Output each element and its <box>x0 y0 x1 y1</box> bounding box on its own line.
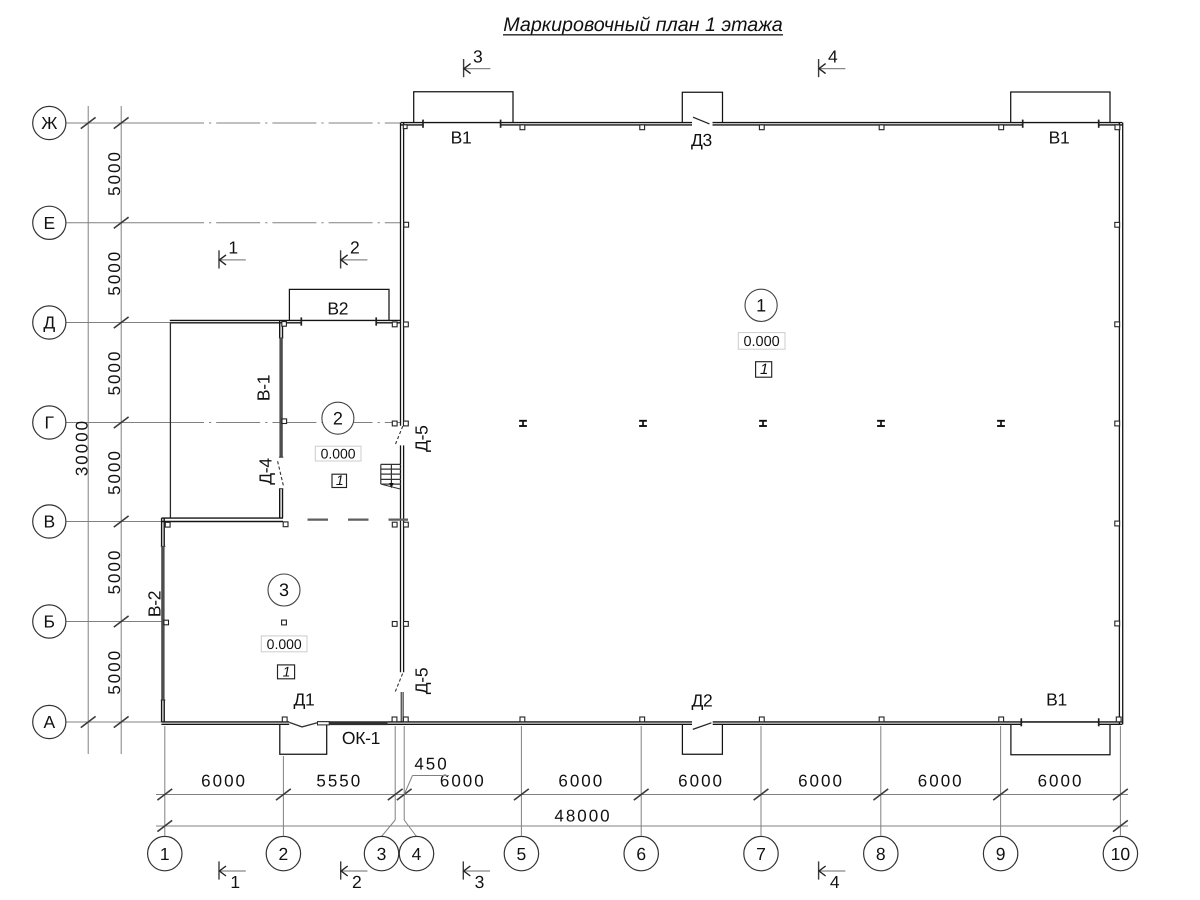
svg-text:Д: Д <box>43 313 55 333</box>
svg-text:1: 1 <box>336 472 344 488</box>
svg-text:2: 2 <box>333 408 343 428</box>
svg-text:0.000: 0.000 <box>321 446 356 462</box>
svg-text:6000: 6000 <box>201 772 247 791</box>
svg-text:3: 3 <box>473 46 483 66</box>
svg-text:5: 5 <box>517 844 527 864</box>
svg-text:6000: 6000 <box>558 772 604 791</box>
svg-text:Ж: Ж <box>41 113 57 133</box>
svg-text:Д2: Д2 <box>692 691 713 711</box>
svg-text:А: А <box>43 712 55 732</box>
svg-text:В1: В1 <box>1049 128 1070 148</box>
svg-text:5000: 5000 <box>105 649 124 695</box>
svg-text:Д-5: Д-5 <box>412 668 432 695</box>
svg-text:6: 6 <box>636 844 646 864</box>
svg-text:0.000: 0.000 <box>267 636 302 652</box>
svg-text:В1: В1 <box>451 128 472 148</box>
svg-text:450: 450 <box>414 755 448 774</box>
svg-text:Д1: Д1 <box>294 690 315 710</box>
svg-text:Д3: Д3 <box>691 130 712 150</box>
svg-text:Д-4: Д-4 <box>256 458 276 485</box>
svg-text:В1: В1 <box>1046 690 1067 710</box>
svg-text:В: В <box>43 512 55 532</box>
svg-text:Маркировочный план 1 этажа: Маркировочный план 1 этажа <box>503 14 782 36</box>
svg-text:5000: 5000 <box>105 150 124 196</box>
svg-text:1: 1 <box>230 872 240 892</box>
svg-text:2: 2 <box>279 844 289 864</box>
svg-text:1: 1 <box>228 238 238 258</box>
svg-text:48000: 48000 <box>554 807 611 826</box>
svg-text:ОК-1: ОК-1 <box>342 728 380 748</box>
svg-text:6000: 6000 <box>1038 772 1084 791</box>
svg-text:1: 1 <box>160 844 170 864</box>
svg-text:1: 1 <box>756 295 766 315</box>
svg-text:6000: 6000 <box>918 772 964 791</box>
svg-text:3: 3 <box>279 580 289 600</box>
svg-text:Е: Е <box>43 213 55 233</box>
svg-text:6000: 6000 <box>440 772 486 791</box>
svg-text:В2: В2 <box>327 299 348 319</box>
svg-text:Б: Б <box>44 612 55 632</box>
svg-text:В-1: В-1 <box>254 375 274 401</box>
svg-text:4: 4 <box>412 844 422 864</box>
svg-text:5000: 5000 <box>105 549 124 595</box>
svg-text:1: 1 <box>283 663 291 679</box>
svg-text:4: 4 <box>828 46 838 66</box>
svg-text:5550: 5550 <box>316 772 362 791</box>
svg-text:10: 10 <box>1111 844 1131 864</box>
svg-text:7: 7 <box>756 844 766 864</box>
svg-text:3: 3 <box>377 844 387 864</box>
svg-text:3: 3 <box>475 872 485 892</box>
svg-text:1: 1 <box>760 361 768 378</box>
svg-text:В-2: В-2 <box>145 591 165 617</box>
svg-text:Д-5: Д-5 <box>412 425 432 452</box>
svg-text:9: 9 <box>996 844 1006 864</box>
svg-text:4: 4 <box>830 872 840 892</box>
svg-text:6000: 6000 <box>678 772 724 791</box>
svg-text:30000: 30000 <box>72 419 91 476</box>
svg-text:2: 2 <box>350 238 360 258</box>
svg-text:5000: 5000 <box>105 350 124 396</box>
svg-text:2: 2 <box>352 872 362 892</box>
svg-text:6000: 6000 <box>798 772 844 791</box>
svg-text:5000: 5000 <box>105 250 124 296</box>
svg-text:5000: 5000 <box>105 449 124 495</box>
svg-text:Г: Г <box>45 413 55 433</box>
svg-text:8: 8 <box>876 844 886 864</box>
svg-text:0.000: 0.000 <box>743 334 779 350</box>
